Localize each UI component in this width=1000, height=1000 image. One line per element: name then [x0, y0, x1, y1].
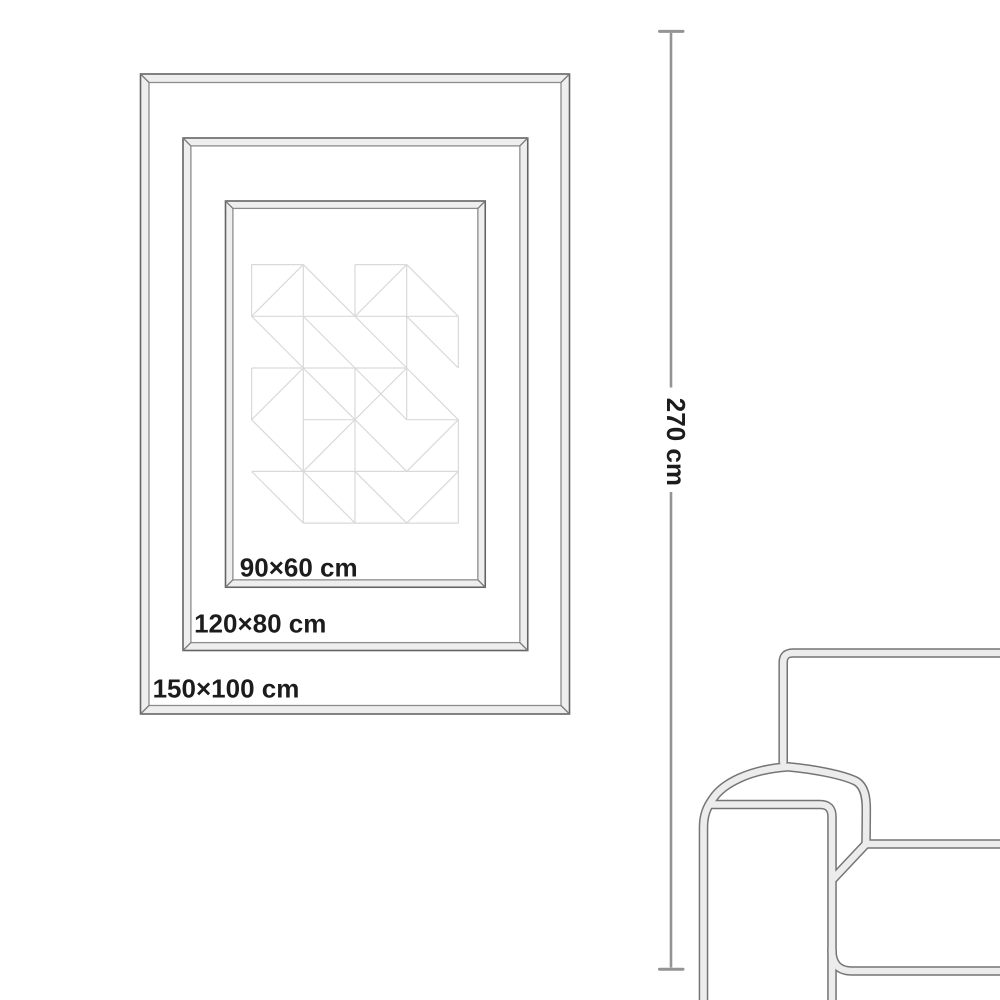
svg-text:150×100 cm: 150×100 cm: [153, 674, 300, 704]
svg-text:120×80 cm: 120×80 cm: [194, 609, 326, 639]
svg-text:90×60 cm: 90×60 cm: [240, 552, 358, 582]
svg-text:270 cm: 270 cm: [661, 398, 691, 486]
